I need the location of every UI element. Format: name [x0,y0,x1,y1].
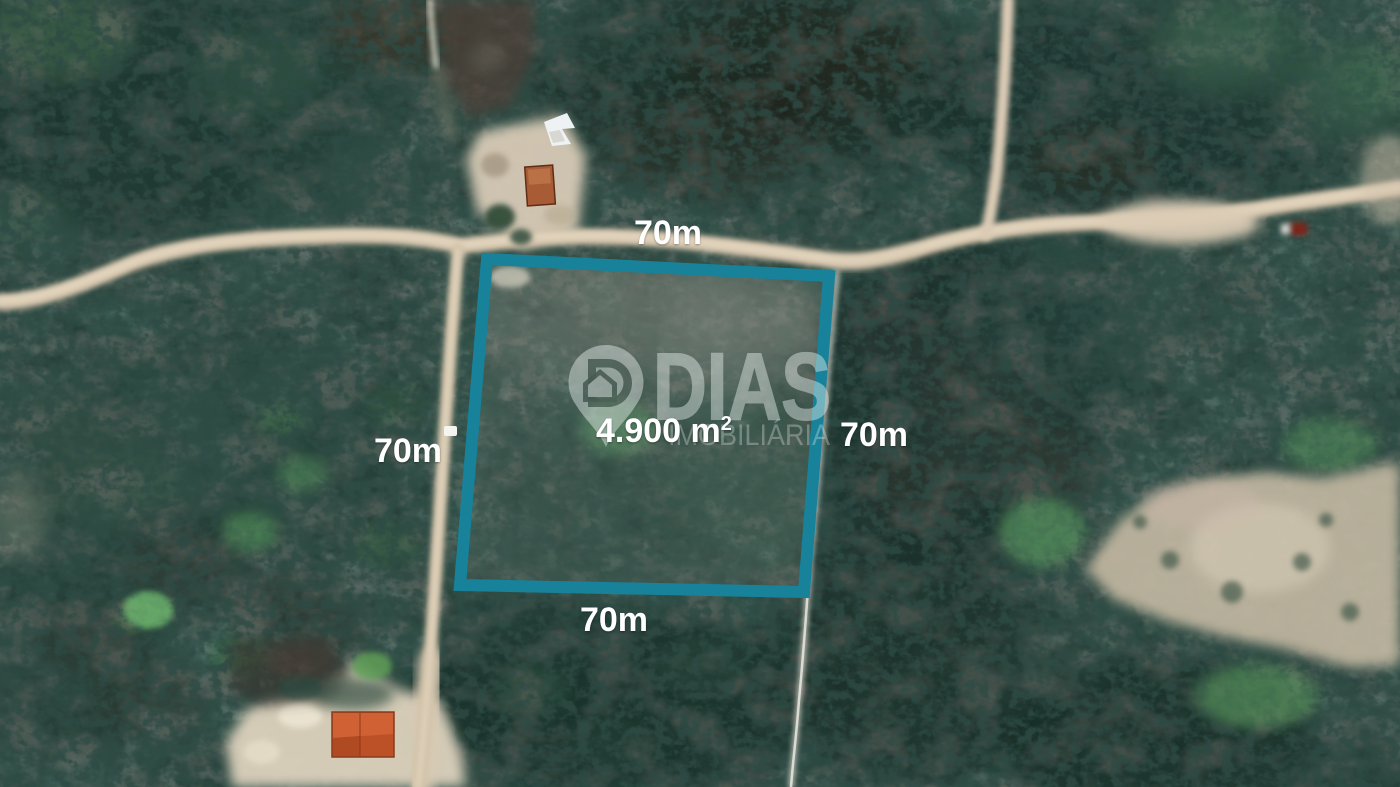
svg-text:70m: 70m [840,416,908,454]
svg-text:70m: 70m [634,214,702,252]
svg-text:4.900 m2: 4.900 m2 [596,412,732,450]
svg-text:70m: 70m [580,601,648,639]
svg-text:70m: 70m [374,432,442,470]
